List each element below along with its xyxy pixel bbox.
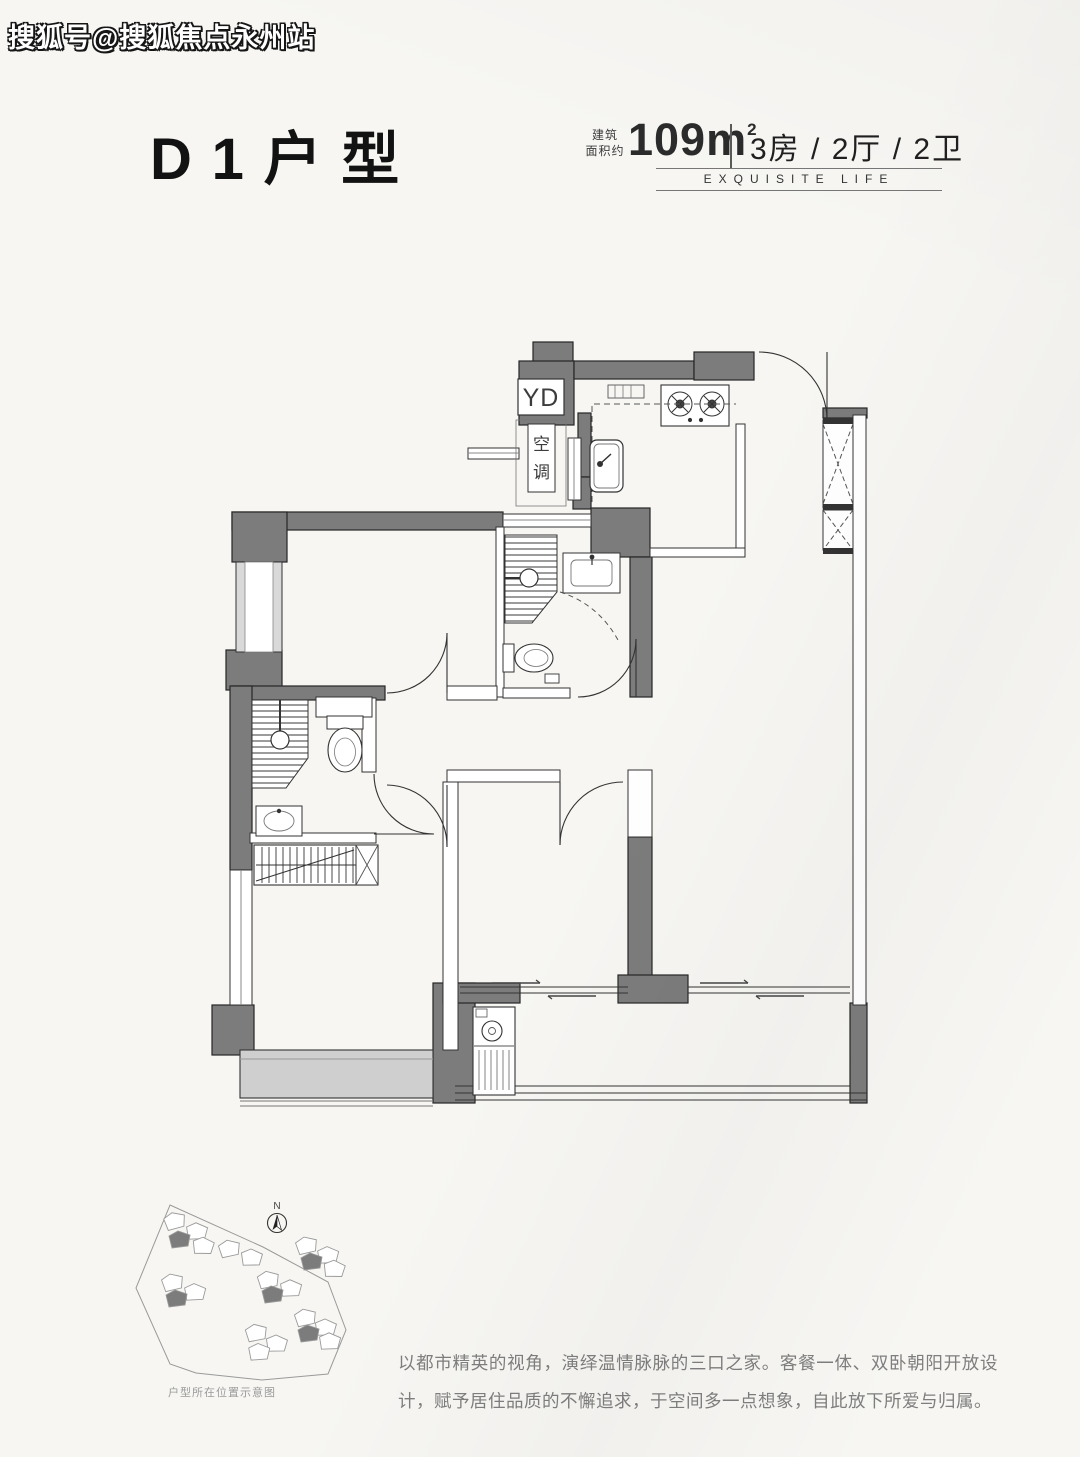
kitchen-sink <box>590 440 623 492</box>
wardrobe <box>254 845 378 885</box>
site-building-highlighted <box>262 1286 283 1303</box>
entry-door <box>759 352 827 420</box>
thin-walls-and-windows <box>230 415 866 1050</box>
niche-shelf <box>316 697 372 717</box>
toilet-1-tank <box>503 644 514 672</box>
site-building-highlighted <box>298 1325 319 1342</box>
bathroom-2-fixtures <box>252 697 372 836</box>
bedroom-2-door <box>387 785 447 847</box>
site-building-highlighted <box>166 1290 187 1307</box>
site-building <box>248 1343 270 1361</box>
site-building <box>218 1239 240 1258</box>
site-buildings <box>161 1211 346 1361</box>
site-building <box>294 1308 316 1327</box>
washing-machine <box>473 1007 515 1095</box>
north-label: N <box>273 1201 280 1212</box>
dish-rack <box>608 385 644 398</box>
site-building <box>184 1283 206 1301</box>
bathroom-2-door <box>374 774 434 834</box>
site-building-highlighted <box>169 1231 190 1248</box>
ac-label-2: 调 <box>533 463 550 482</box>
compass-needle-dark <box>273 1215 278 1230</box>
floor-plan: YD 空 调 N 户型所在位置示意图 <box>0 0 1080 1457</box>
site-building <box>245 1324 267 1342</box>
balcony <box>240 980 867 1106</box>
shower-head-icon-2 <box>271 731 289 749</box>
watermark: 搜狐号@搜狐焦点永州站 <box>8 16 315 55</box>
floor-drain <box>545 674 559 683</box>
bathroom-1-door <box>578 639 636 697</box>
site-building <box>280 1279 302 1298</box>
shower-screen-dashed <box>560 592 618 640</box>
bedroom-1-door <box>387 633 447 693</box>
site-building <box>257 1271 279 1289</box>
site-building <box>295 1236 318 1255</box>
kitchen-fixtures <box>590 385 736 502</box>
bedroom-3-door <box>560 782 623 845</box>
site-map: N 户型所在位置示意图 <box>136 1201 346 1399</box>
door-swings <box>374 352 827 847</box>
site-building-highlighted <box>301 1253 322 1270</box>
toilet-1-bowl <box>515 644 553 672</box>
site-building <box>161 1273 184 1292</box>
plan-labels: YD 空 调 <box>518 379 564 492</box>
site-boundary <box>136 1205 346 1380</box>
site-building <box>240 1248 263 1267</box>
site-caption: 户型所在位置示意图 <box>168 1385 276 1399</box>
shower-head-icon <box>520 569 538 587</box>
equipment-platform <box>823 418 853 554</box>
yd-label: YD <box>523 384 560 412</box>
gas-stove <box>661 385 729 426</box>
compass-needle-light <box>277 1215 282 1230</box>
description-text: 以都市精英的视角，演绎温情脉脉的三口之家。客餐一体、双卧朝阳开放设计，赋予居住品… <box>398 1344 998 1420</box>
toilet-2-tank <box>327 716 363 729</box>
ac-label-1: 空 <box>533 435 550 454</box>
compass: N <box>268 1201 287 1233</box>
bathroom-1-fixtures <box>503 535 620 683</box>
toilet-2-bowl <box>328 728 362 772</box>
